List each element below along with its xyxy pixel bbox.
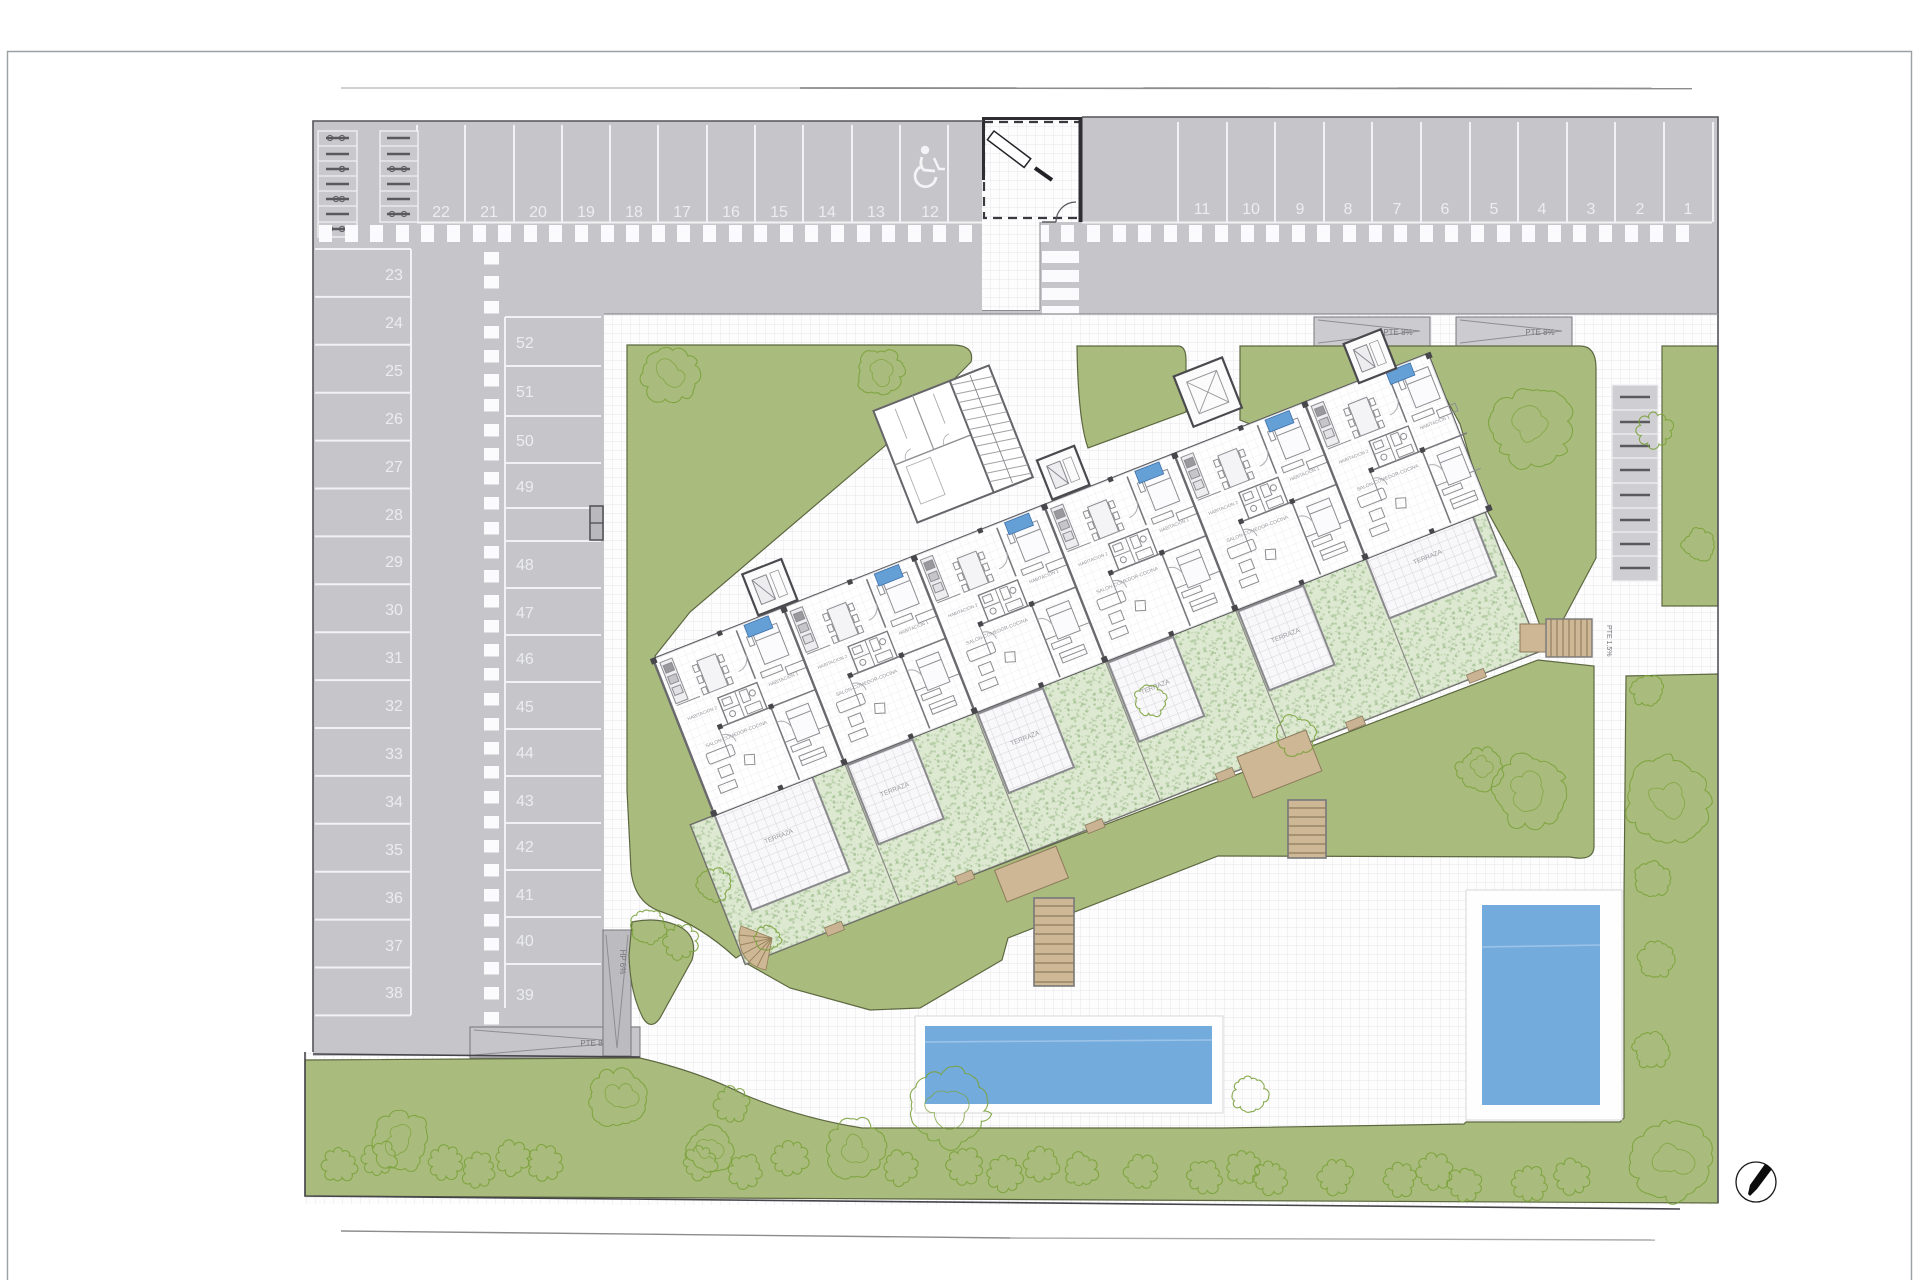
svg-text:23: 23 — [385, 267, 403, 284]
svg-text:9: 9 — [1296, 201, 1305, 218]
svg-text:42: 42 — [516, 839, 534, 856]
svg-text:15: 15 — [770, 204, 788, 221]
svg-text:50: 50 — [516, 433, 534, 450]
svg-text:47: 47 — [516, 605, 534, 622]
svg-text:46: 46 — [516, 651, 534, 668]
svg-text:48: 48 — [516, 557, 534, 574]
svg-text:1: 1 — [1684, 201, 1693, 218]
svg-text:37: 37 — [385, 938, 403, 955]
svg-text:HP 6%: HP 6% — [618, 950, 627, 975]
svg-text:32: 32 — [385, 698, 403, 715]
svg-text:7: 7 — [1393, 201, 1402, 218]
svg-text:33: 33 — [385, 746, 403, 763]
svg-text:28: 28 — [385, 507, 403, 524]
svg-text:13: 13 — [867, 204, 885, 221]
svg-text:34: 34 — [385, 794, 403, 811]
svg-text:PTE 8%: PTE 8% — [1383, 328, 1412, 337]
svg-text:26: 26 — [385, 411, 403, 428]
svg-text:52: 52 — [516, 335, 534, 352]
svg-text:40: 40 — [516, 933, 534, 950]
svg-text:43: 43 — [516, 793, 534, 810]
svg-text:20: 20 — [529, 204, 547, 221]
svg-text:41: 41 — [516, 887, 534, 904]
svg-text:5: 5 — [1490, 201, 1499, 218]
svg-text:PTE 8%: PTE 8% — [1525, 328, 1554, 337]
svg-text:38: 38 — [385, 985, 403, 1002]
svg-text:31: 31 — [385, 650, 403, 667]
svg-text:2: 2 — [1636, 201, 1645, 218]
svg-text:3: 3 — [1587, 201, 1596, 218]
svg-text:16: 16 — [722, 204, 740, 221]
svg-text:25: 25 — [385, 363, 403, 380]
svg-text:11: 11 — [1194, 201, 1211, 218]
svg-text:39: 39 — [516, 987, 534, 1004]
svg-text:29: 29 — [385, 554, 403, 571]
svg-text:44: 44 — [516, 745, 534, 762]
svg-text:18: 18 — [625, 204, 643, 221]
svg-text:27: 27 — [385, 459, 403, 476]
svg-text:21: 21 — [480, 204, 498, 221]
svg-text:6: 6 — [1441, 201, 1450, 218]
svg-text:12: 12 — [921, 204, 939, 221]
svg-text:4: 4 — [1538, 201, 1547, 218]
svg-text:PTE 1.5%: PTE 1.5% — [1605, 625, 1612, 657]
svg-text:51: 51 — [516, 384, 534, 401]
svg-text:8: 8 — [1344, 201, 1353, 218]
svg-text:10: 10 — [1242, 201, 1260, 218]
svg-text:22: 22 — [432, 204, 450, 221]
svg-text:30: 30 — [385, 602, 403, 619]
svg-text:19: 19 — [577, 204, 595, 221]
svg-text:14: 14 — [818, 204, 836, 221]
svg-text:17: 17 — [673, 204, 691, 221]
svg-text:49: 49 — [516, 479, 534, 496]
svg-text:24: 24 — [385, 315, 403, 332]
svg-text:45: 45 — [516, 699, 534, 716]
svg-text:35: 35 — [385, 842, 403, 859]
svg-text:36: 36 — [385, 890, 403, 907]
